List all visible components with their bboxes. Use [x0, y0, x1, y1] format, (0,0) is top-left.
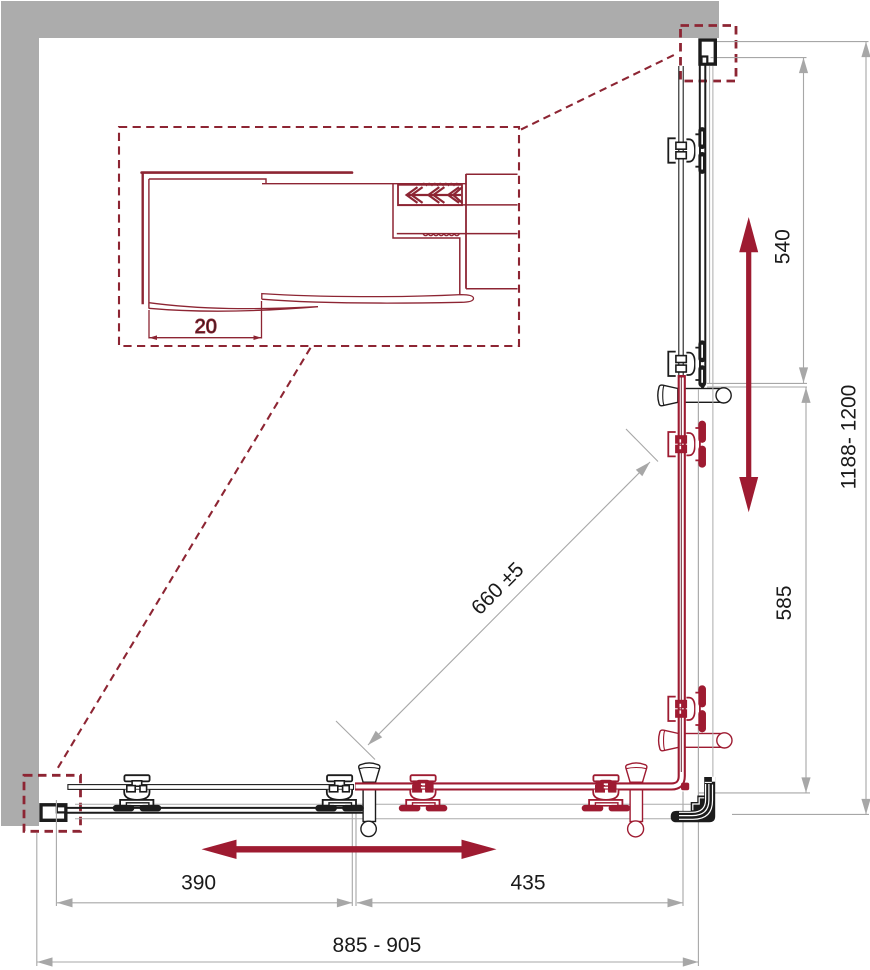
svg-text:20: 20 — [195, 316, 217, 338]
svg-text:585: 585 — [773, 585, 796, 620]
svg-text:885 - 905: 885 - 905 — [333, 934, 422, 957]
svg-text:1188- 1200: 1188- 1200 — [838, 385, 861, 490]
svg-text:390: 390 — [181, 871, 216, 894]
svg-text:435: 435 — [510, 871, 545, 894]
svg-text:660 ±5: 660 ±5 — [467, 558, 529, 620]
svg-text:540: 540 — [772, 229, 795, 264]
